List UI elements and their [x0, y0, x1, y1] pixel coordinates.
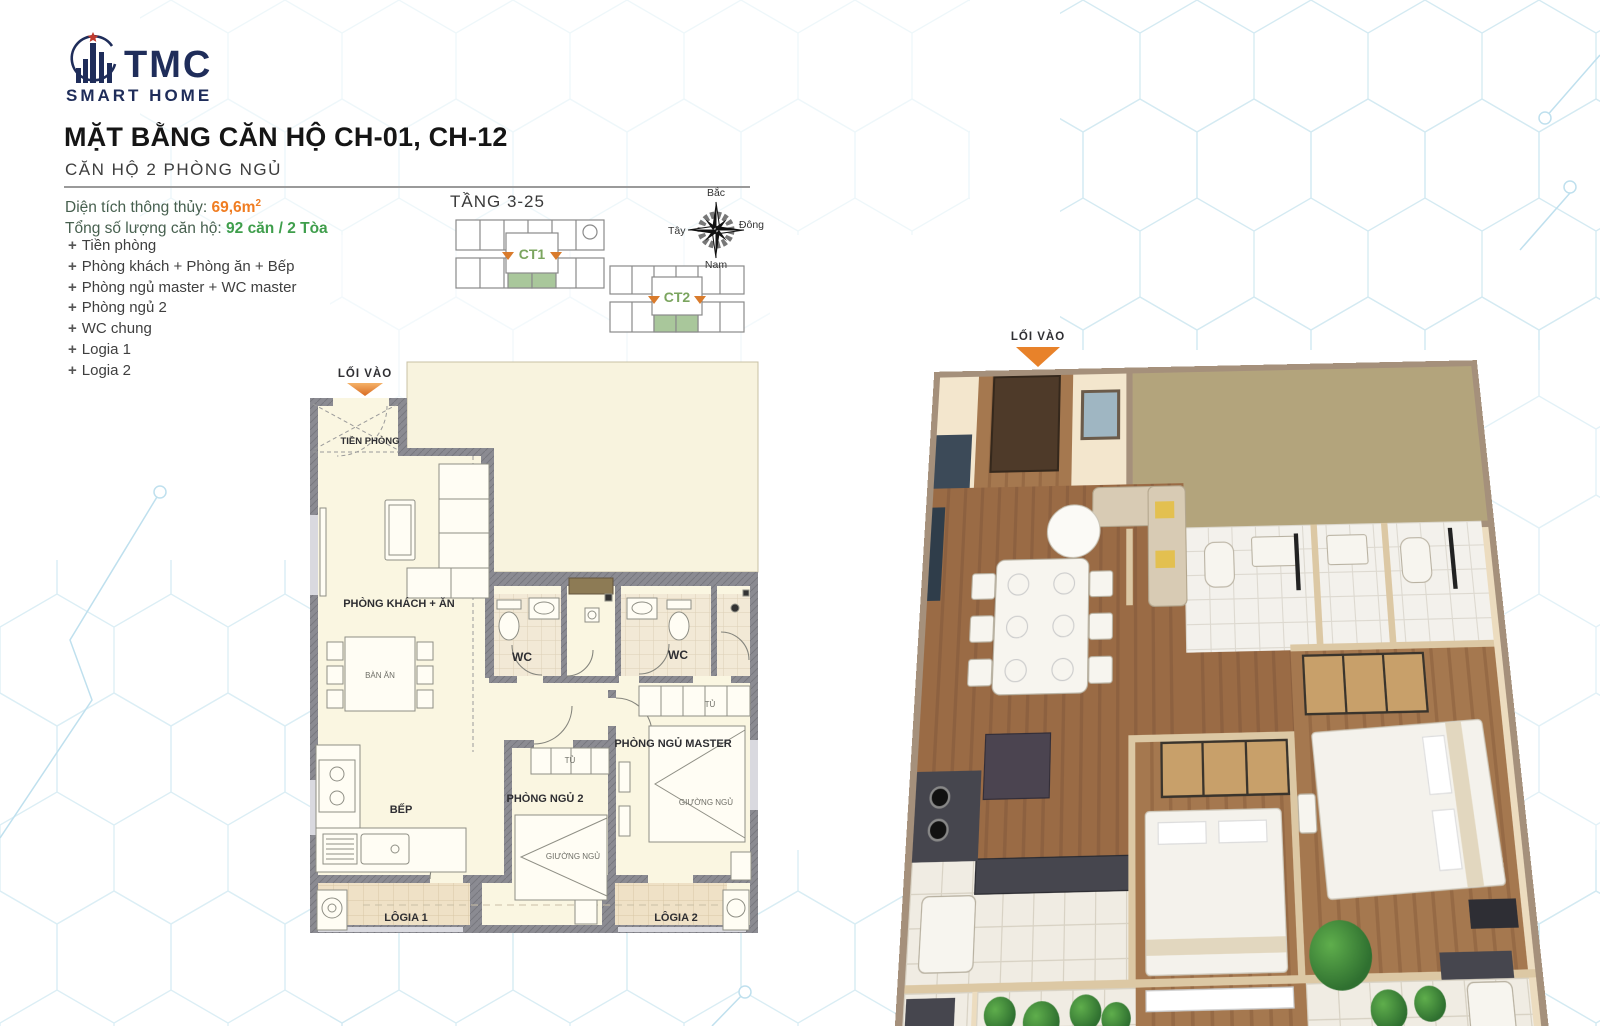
dresser: [1468, 898, 1518, 928]
label-bedroom2: PHÒNG NGỦ 2: [506, 792, 583, 805]
dining-table-3d: [991, 558, 1089, 696]
label-bed-b2: GIƯỜNG NGỦ: [546, 852, 600, 861]
washer2: [723, 890, 749, 930]
bedroom2-floor: [1135, 739, 1305, 980]
wall: [1126, 529, 1133, 606]
entry-hall: [933, 374, 1126, 500]
chair: [1088, 656, 1113, 684]
kitchen-island: [983, 732, 1052, 800]
bed-3d: [1145, 808, 1289, 977]
page-subtitle: CĂN HỘ 2 PHÒNG NGỦ: [65, 160, 282, 180]
label-wc2: WC: [668, 648, 688, 662]
washing-machine: [1466, 981, 1518, 1026]
label-tien-phong: TIỀN PHÒNG: [340, 435, 399, 447]
floors-label: TẦNG 3-25: [450, 192, 545, 212]
label-kitchen: BẾP: [390, 803, 413, 816]
list-item: +WC chung: [68, 319, 296, 340]
floorplan-2d: LỐI VÀO: [303, 360, 763, 950]
compass-north: Bắc: [707, 186, 725, 199]
room-list: +Tiền phòng +Phòng khách + Phòng ăn + Bế…: [68, 236, 296, 382]
chair: [971, 573, 996, 600]
compass-west: Tây: [668, 225, 686, 237]
star-icon: [88, 32, 99, 42]
compass-rose: [688, 202, 744, 258]
sofa-3d: [1147, 485, 1187, 607]
area-value: 69,6m: [211, 199, 255, 216]
units-value: 92 căn / 2 Tòa: [226, 220, 328, 237]
wardrobe-3d: [1160, 739, 1290, 799]
label-logia1: LÔGIA 1: [384, 911, 428, 924]
washing-machine: [917, 895, 976, 974]
units-label: Tổng số lượng căn hộ:: [65, 220, 222, 237]
area-sup: 2: [255, 198, 261, 209]
area-label: Diện tích thông thủy:: [65, 199, 207, 216]
hallway-floor: [1186, 650, 1294, 741]
page-title: MẶT BẰNG CĂN HỘ CH-01, CH-12: [64, 122, 508, 153]
washer1: [317, 890, 347, 930]
entrance-arrow-2d: [347, 383, 383, 396]
label-master: PHÒNG NGỦ MASTER: [614, 737, 731, 750]
label-wc1: WC: [512, 650, 532, 664]
sink: [1326, 534, 1369, 565]
list-item: +Tiền phòng: [68, 236, 296, 257]
compass-east: Đông: [739, 219, 764, 231]
entrance-arrow-3d: [1016, 347, 1060, 367]
logo-icon: [68, 26, 124, 90]
kitchen-loggia-corner: [900, 992, 972, 1026]
bed-3d: [1311, 719, 1507, 901]
floorplan-3d: LỐI VÀO: [930, 322, 1530, 990]
divider-line: [64, 186, 750, 188]
label-wardrobe-master: TỦ: [705, 700, 716, 709]
label-bed-master: GIƯỜNG NGỦ: [679, 798, 733, 807]
shower-fixture: [1448, 528, 1458, 589]
keyplan-tower2: CT2: [608, 262, 748, 342]
entry-door: [989, 375, 1061, 473]
tower1-label: CT1: [519, 246, 546, 262]
area-row: Diện tích thông thủy: 69,6m2: [65, 193, 328, 218]
label-living: PHÒNG KHÁCH + ĂN: [343, 597, 455, 610]
bedroom2-loggia-3d: [1136, 983, 1309, 1026]
toilet: [1204, 541, 1236, 588]
loggia1-3d: [975, 988, 1136, 1026]
tv-cabinet: [320, 508, 326, 596]
chair: [967, 658, 993, 686]
entrance-label-2d: LỐI VÀO: [338, 366, 392, 380]
logo-tagline: SMART HOME: [66, 86, 212, 106]
chair: [1089, 570, 1113, 597]
list-item: +Phòng ngủ 2: [68, 298, 296, 319]
brochure-page: { "logo": { "name": "TMC", "tagline": "S…: [0, 0, 1600, 1026]
keyplan-tower1: CT1: [452, 214, 612, 294]
list-item: +Phòng ngủ master + WC master: [68, 278, 296, 299]
nightstand: [1297, 793, 1318, 834]
label-wardrobe-b2: TỦ: [565, 756, 576, 765]
list-item: +Logia 2: [68, 361, 296, 382]
loggia2-3d: [1306, 978, 1536, 1026]
apartment-info: Diện tích thông thủy: 69,6m2 Tổng số lượ…: [65, 193, 328, 239]
list-item: +Logia 1: [68, 340, 296, 361]
bathrooms: [1184, 521, 1494, 653]
list-item: +Phòng khách + Phòng ăn + Bếp: [68, 257, 296, 278]
entrance-label-3d-group: LỐI VÀO: [988, 324, 1088, 370]
chair: [1089, 612, 1113, 640]
logo-name: TMC: [124, 44, 212, 87]
shower-fixture: [1294, 533, 1301, 590]
compass: Bắc Đông Nam Tây: [664, 186, 768, 270]
entrance-label-3d: LỐI VÀO: [1011, 329, 1065, 343]
compass-south: Nam: [705, 259, 727, 270]
label-dining-table: BÀN ĂN: [365, 671, 395, 680]
tower2-label: CT2: [664, 289, 691, 305]
sink: [1251, 536, 1298, 567]
wall-picture: [1080, 389, 1120, 440]
toilet: [1399, 537, 1433, 583]
scene-3d: [892, 360, 1553, 1026]
label-logia2: LÔGIA 2: [654, 911, 698, 924]
chair: [969, 615, 994, 643]
wardrobe-3d: [1302, 652, 1429, 716]
kitchen-counter: [912, 770, 982, 862]
wall: [1128, 742, 1135, 979]
